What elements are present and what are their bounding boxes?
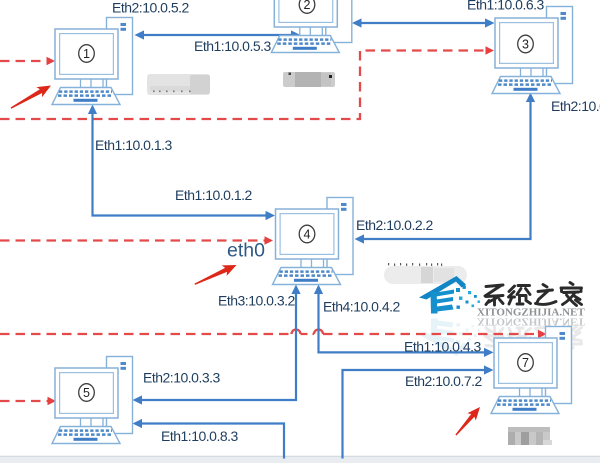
svg-text:Eth2:10.0.7.2: Eth2:10.0.7.2 [405,373,483,389]
svg-text:Eth1:10.0.8.3: Eth1:10.0.8.3 [161,428,239,444]
svg-text:4: 4 [304,228,311,242]
svg-text:Eth4:10.0.4.2: Eth4:10.0.4.2 [323,299,401,315]
svg-text:1: 1 [83,47,90,61]
svg-text:2: 2 [304,0,311,12]
svg-text:Eth3:10.0.3.2: Eth3:10.0.3.2 [218,293,296,309]
svg-text:Eth1:10.0.4.3: Eth1:10.0.4.3 [404,339,482,355]
svg-text:5: 5 [83,386,90,400]
svg-text:Eth2:10.0.3.3: Eth2:10.0.3.3 [143,370,221,386]
svg-text:3: 3 [522,38,529,52]
svg-text:Eth2:10.0.2.2: Eth2:10.0.2.2 [356,217,434,233]
svg-text:eth0: eth0 [227,240,265,262]
svg-text:Eth1:10.0.1.3: Eth1:10.0.1.3 [95,137,173,153]
svg-text:XITONGZHIJIA.NET: XITONGZHIJIA.NET [477,316,585,328]
svg-text:Eth1:10.0.5.3: Eth1:10.0.5.3 [194,38,272,54]
svg-text:Eth2:10.0.2.3: Eth2:10.0.2.3 [551,98,600,114]
svg-text:7: 7 [522,356,529,370]
svg-text:Eth1:10.0.6.3: Eth1:10.0.6.3 [467,0,545,13]
svg-text:Eth2:10.0.5.2: Eth2:10.0.5.2 [112,0,190,16]
svg-text:Eth1:10.0.1.2: Eth1:10.0.1.2 [175,187,253,203]
